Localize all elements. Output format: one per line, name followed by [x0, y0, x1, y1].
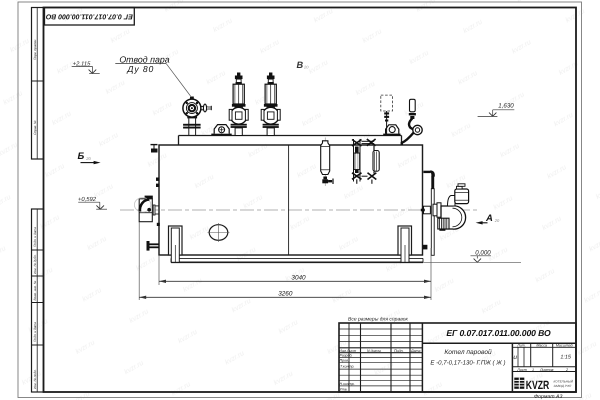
- svg-text:Н.контр.: Н.контр.: [340, 382, 355, 386]
- svg-text:Т.контр.: Т.контр.: [340, 365, 355, 369]
- svg-text:Подп. и дата: Подп. и дата: [33, 227, 37, 247]
- svg-text:Котел паровой: Котел паровой: [444, 349, 492, 356]
- svg-text:1,630: 1,630: [498, 103, 514, 110]
- svg-text:Изм.Лист: Изм.Лист: [339, 349, 356, 353]
- svg-text:Масса: Масса: [536, 344, 547, 348]
- svg-text:Листов: Листов: [539, 368, 554, 372]
- svg-text:3260: 3260: [278, 291, 293, 298]
- svg-text:В: В: [297, 60, 304, 70]
- svg-text:Инв. № дубл.: Инв. № дубл.: [33, 254, 37, 274]
- svg-text:KVZR: KVZR: [526, 378, 550, 392]
- svg-text:ЕГ 0.07.017.011.00.000 ВО: ЕГ 0.07.017.011.00.000 ВО: [45, 13, 132, 20]
- svg-text:Е -0,7-0,17-130- Г.ПЖ ( Ж ): Е -0,7-0,17-130- Г.ПЖ ( Ж ): [430, 360, 505, 367]
- svg-text:ЕГ 0.07.017.011.00.000 ВО: ЕГ 0.07.017.011.00.000 ВО: [446, 328, 551, 338]
- svg-text:+0,592: +0,592: [78, 196, 97, 203]
- svg-text:Инв. № подл.: Инв. № подл.: [33, 369, 37, 389]
- svg-text:N докум.: N докум.: [367, 349, 382, 353]
- svg-text:Лист: Лист: [516, 368, 527, 372]
- svg-text:2: 2: [565, 368, 568, 372]
- svg-text:Перв. примен.: Перв. примен.: [33, 39, 37, 60]
- svg-text:ЗАВОД РЭП: ЗАВОД РЭП: [554, 384, 573, 388]
- svg-text:20: 20: [303, 65, 309, 70]
- svg-text:Формат А3: Формат А3: [534, 394, 562, 400]
- svg-text:Лит.: Лит.: [516, 344, 525, 348]
- svg-text:Справ. №: Справ. №: [33, 120, 37, 135]
- svg-text:Б: Б: [78, 151, 85, 162]
- svg-text:20: 20: [494, 218, 500, 223]
- svg-text:и: и: [513, 354, 517, 361]
- svg-text:Разраб.: Разраб.: [340, 354, 353, 358]
- svg-text:Отвод пара: Отвод пара: [119, 55, 169, 65]
- svg-text:Подп.: Подп.: [394, 349, 404, 353]
- svg-text:Ду 80: Ду 80: [126, 64, 154, 74]
- svg-text:Пров.: Пров.: [340, 359, 349, 363]
- svg-text:Дата: Дата: [410, 349, 420, 353]
- svg-text:20: 20: [85, 156, 91, 161]
- svg-text:3040: 3040: [291, 274, 306, 281]
- svg-text:Утв.: Утв.: [340, 388, 348, 392]
- svg-text:КОТЕЛЬНЫЙ: КОТЕЛЬНЫЙ: [554, 379, 574, 383]
- svg-text:1:15: 1:15: [560, 354, 571, 360]
- svg-text:0,000: 0,000: [475, 249, 491, 256]
- svg-text:Подп. и дата: Подп. и дата: [33, 322, 37, 342]
- svg-text:1: 1: [532, 368, 534, 372]
- svg-text:Масштаб: Масштаб: [556, 344, 574, 348]
- svg-text:Взам. инв. №: Взам. инв. №: [33, 280, 37, 300]
- svg-text:Все размеры для справок: Все размеры для справок: [348, 317, 409, 323]
